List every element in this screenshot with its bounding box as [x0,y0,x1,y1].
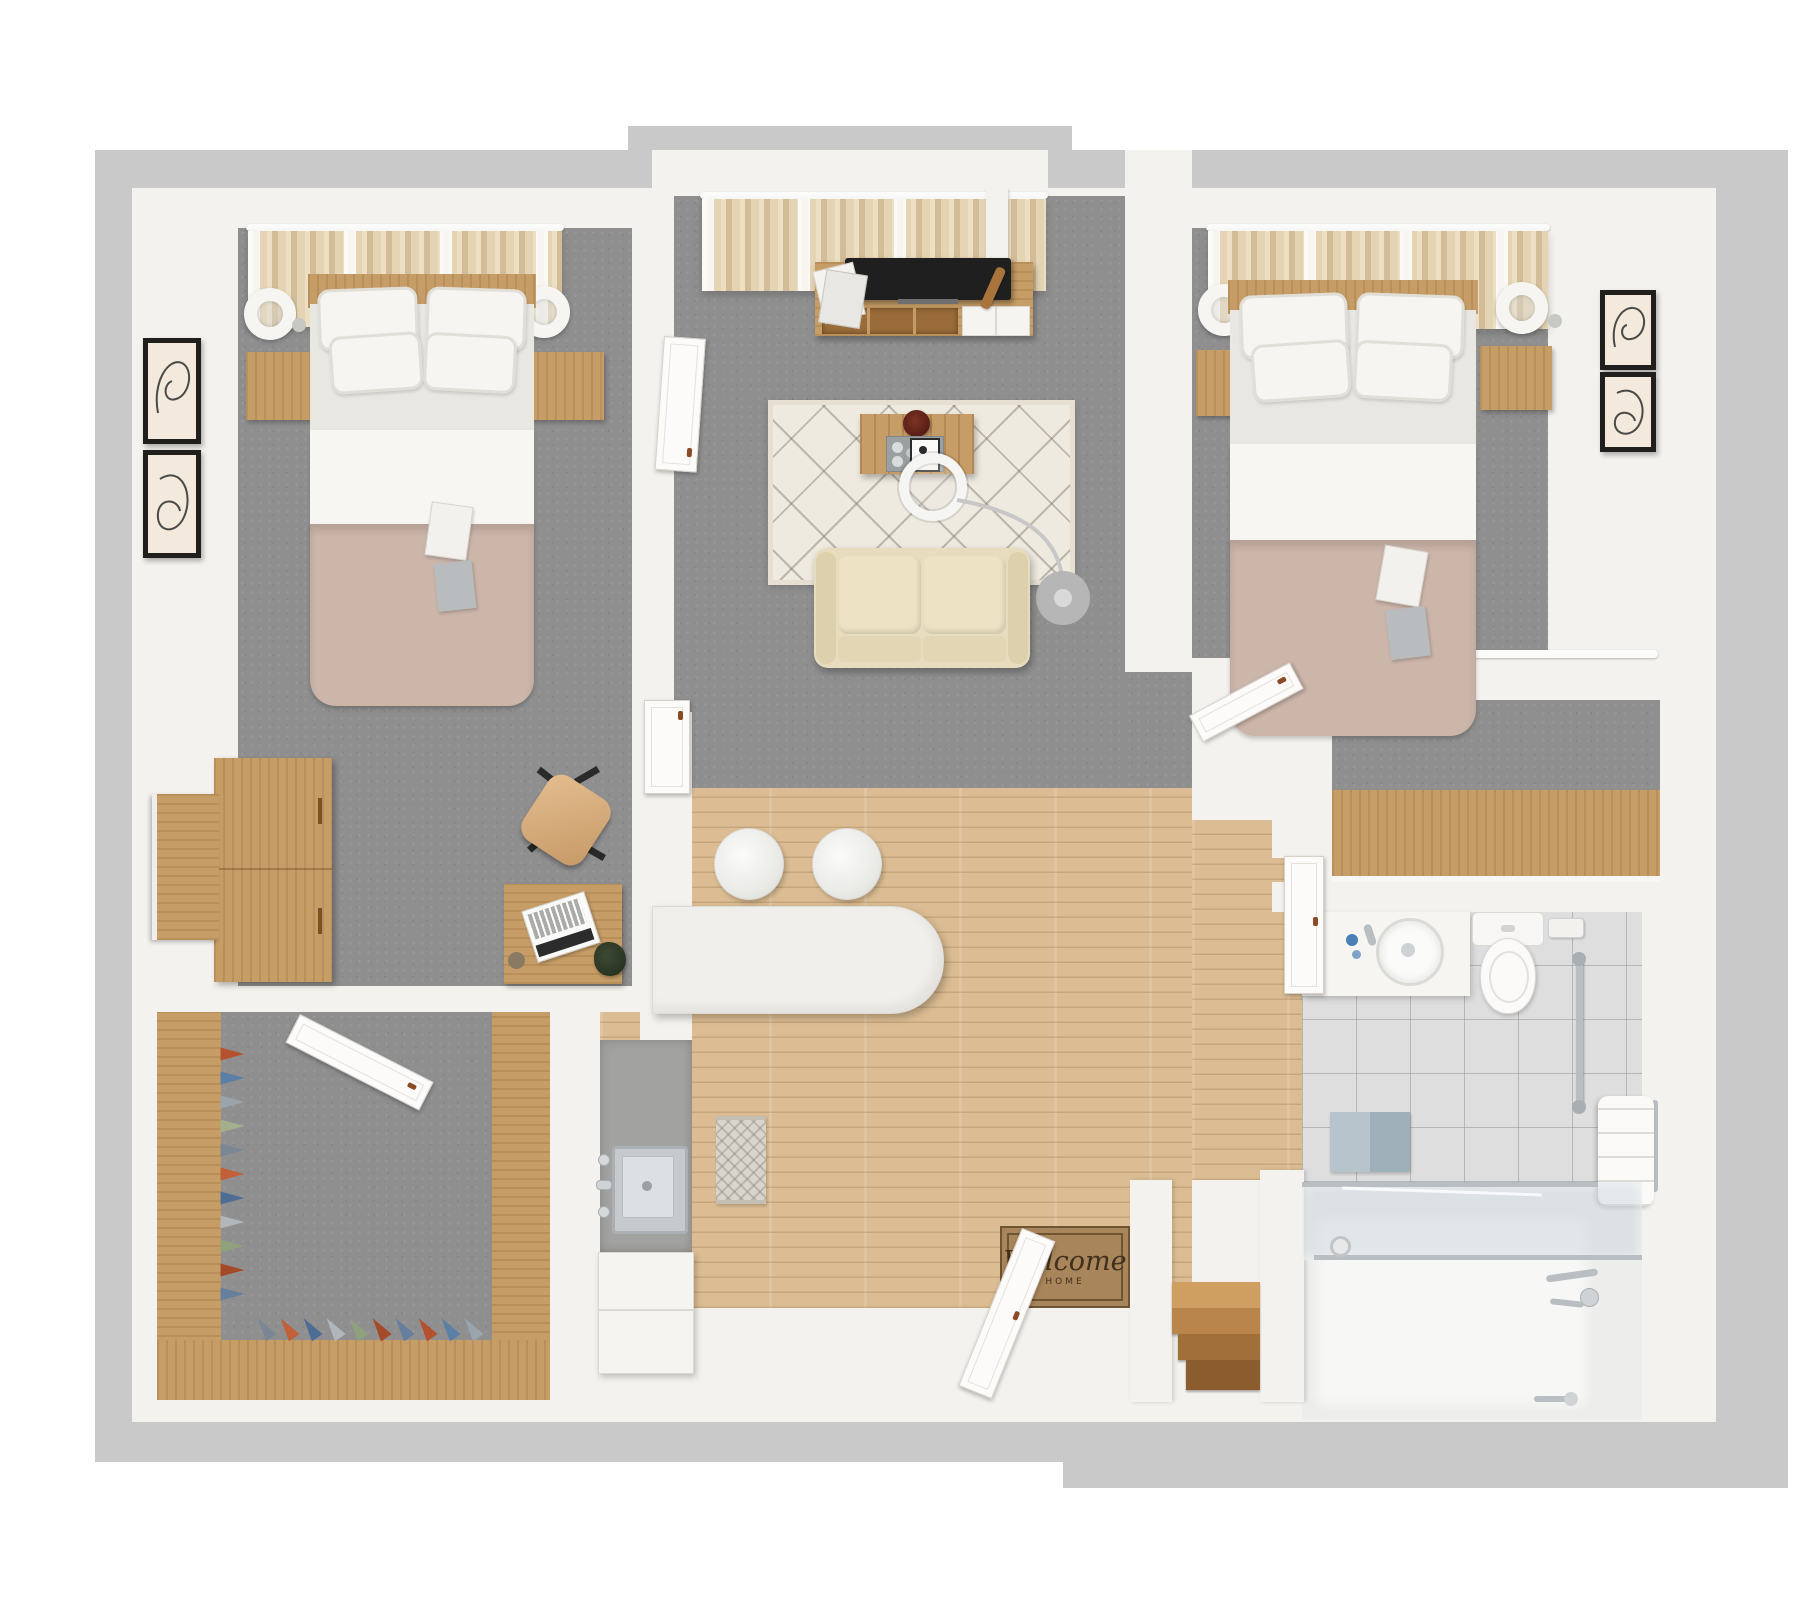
wall-lbed-living-b [632,470,674,712]
table-lamp [1496,282,1548,334]
toiletries [1346,934,1358,946]
sofa-seat-cushion [838,636,921,662]
wall-bathroom-top [1272,882,1716,912]
stair-step [1178,1334,1260,1360]
right-closet-shelf [1332,790,1660,882]
wardrobe-open-door [152,794,219,940]
stair-step [1172,1282,1260,1308]
toilet-bowl [1480,938,1536,1014]
book [1385,606,1431,661]
grab-bar-mount [1572,952,1586,966]
hall-door [644,700,690,794]
desk-plant [594,942,626,976]
closet-shelf-right [492,1012,550,1342]
shower-fixture [1540,1266,1604,1326]
wardrobe [214,758,332,982]
kitchen-faucet [596,1154,612,1224]
double-bed [308,274,536,706]
toiletries [1352,950,1361,959]
magazine [424,501,473,560]
sofa-armrest [1008,552,1028,664]
curtain-rod [246,224,564,231]
sofa [814,548,1030,668]
outer-wall-right [1714,150,1788,1462]
stair-step [1172,1308,1260,1334]
bar-stool [812,828,882,900]
shower-handle [1534,1392,1580,1410]
shower-drain [1330,1236,1351,1257]
shower-glass-door [1302,1182,1642,1260]
bar-stool [714,828,784,900]
toilet-paper-holder [1548,918,1584,938]
wall-art-frame [1600,290,1656,370]
closet-shelf-bottom [157,1340,550,1400]
sofa-back-cushion [838,556,921,634]
wall-stairwell-right [1260,1170,1304,1402]
bed-sheet [1230,444,1476,544]
curtain-rod [1206,224,1550,231]
wall-art-frame [143,450,201,558]
outer-wall-bottom-step [1063,1462,1788,1488]
pillow [328,331,424,395]
tv-stand [898,299,958,304]
duvet [310,524,534,706]
kitchen-base-cabinet [598,1252,694,1374]
pillow [423,332,518,395]
sofa-armrest [816,552,836,664]
bathroom-door [1284,856,1324,994]
wall-lbed-bottom-b [458,986,632,1012]
wall-art-frame [1600,372,1656,452]
outer-wall-bay-left [628,126,652,194]
outer-wall-bay [628,126,1072,152]
lamp-bulb [292,318,306,332]
sofa-seat-cushion [923,636,1006,662]
pillow [1353,339,1454,402]
wall-lbed-bottom-a [132,986,302,1012]
wall-lbed-living-a [632,228,674,336]
kitchen-sink [612,1146,688,1234]
toilet [1472,912,1542,1016]
grab-bar [1576,958,1583,1108]
nightstand [1480,346,1552,410]
decor-bowl [903,410,930,437]
nightstand [528,352,604,420]
book [434,560,477,612]
desk-chair [522,772,612,870]
desk-decor [508,952,525,969]
hall-carpet-strip [1125,672,1192,788]
bed-sheet [310,430,534,528]
grab-bar-mount [1572,1100,1586,1114]
magazine-stack [818,262,862,326]
double-bed [1228,280,1478,736]
stair-step [1186,1360,1260,1390]
wall-living-rbed [1125,150,1192,658]
floor-plan: Welcome HOME [0,0,1800,1600]
kitchen-runner-rug [716,1116,766,1204]
outer-wall-bottom [95,1420,1760,1462]
table-lamp [244,288,296,340]
wall-art-frame [143,338,201,444]
doormat-text-home: HOME [1045,1277,1084,1287]
lamp-bulb [1548,314,1562,328]
outer-wall-bay-right [1048,126,1072,194]
pillow [1250,339,1352,404]
sofa-back-cushion [923,556,1006,634]
wall-stairwell-left [1130,1180,1172,1402]
outer-wall-left [95,150,135,1462]
breakfast-bar [652,906,944,1014]
vanity-sink [1376,918,1444,986]
wall-closet-kitchen [550,1012,600,1400]
bath-mat [1330,1112,1410,1172]
